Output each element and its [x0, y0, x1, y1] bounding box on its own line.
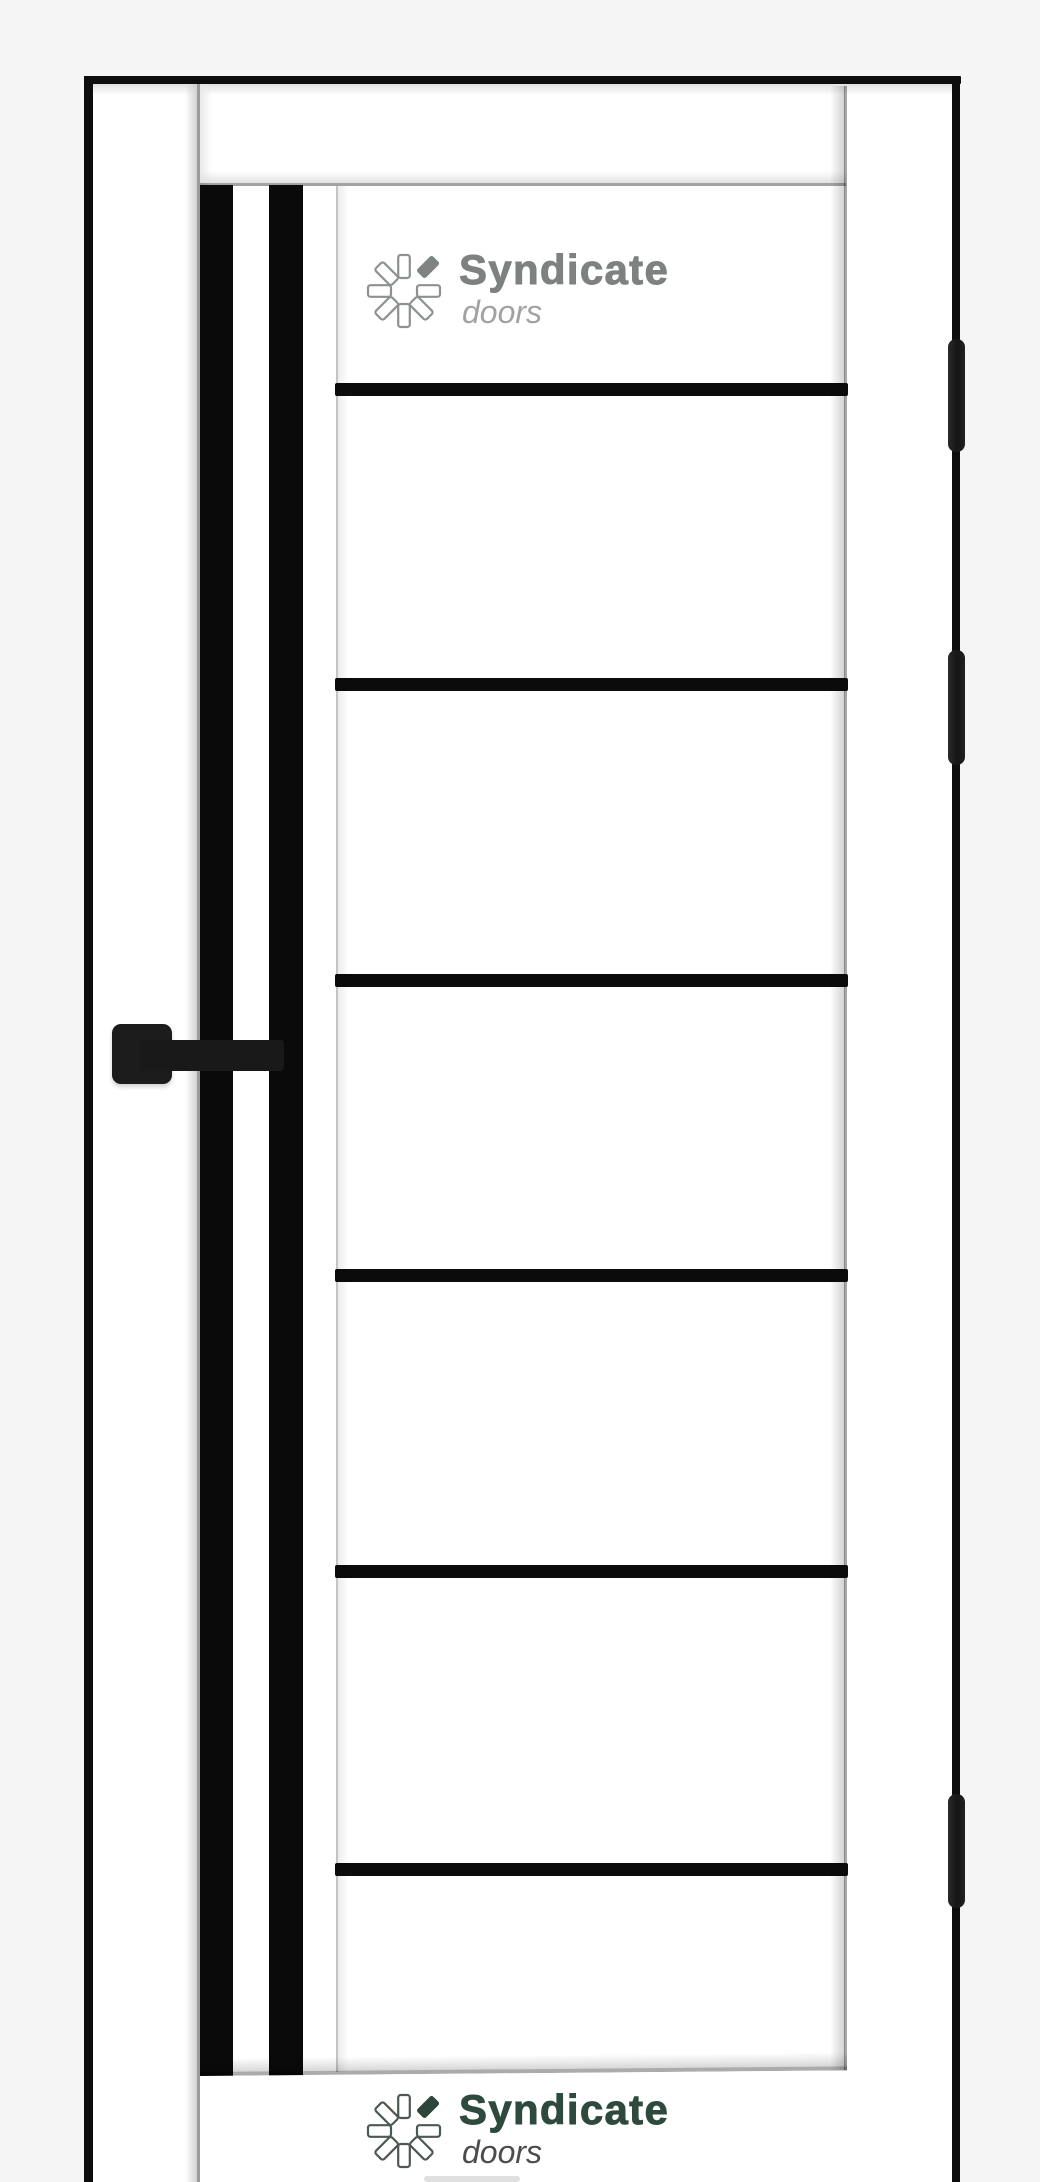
svg-text:Syndicate: Syndicate — [459, 246, 669, 293]
svg-text:Syndicate: Syndicate — [459, 2086, 669, 2133]
svg-text:doors: doors — [462, 2134, 542, 2170]
svg-text:doors: doors — [462, 294, 542, 330]
